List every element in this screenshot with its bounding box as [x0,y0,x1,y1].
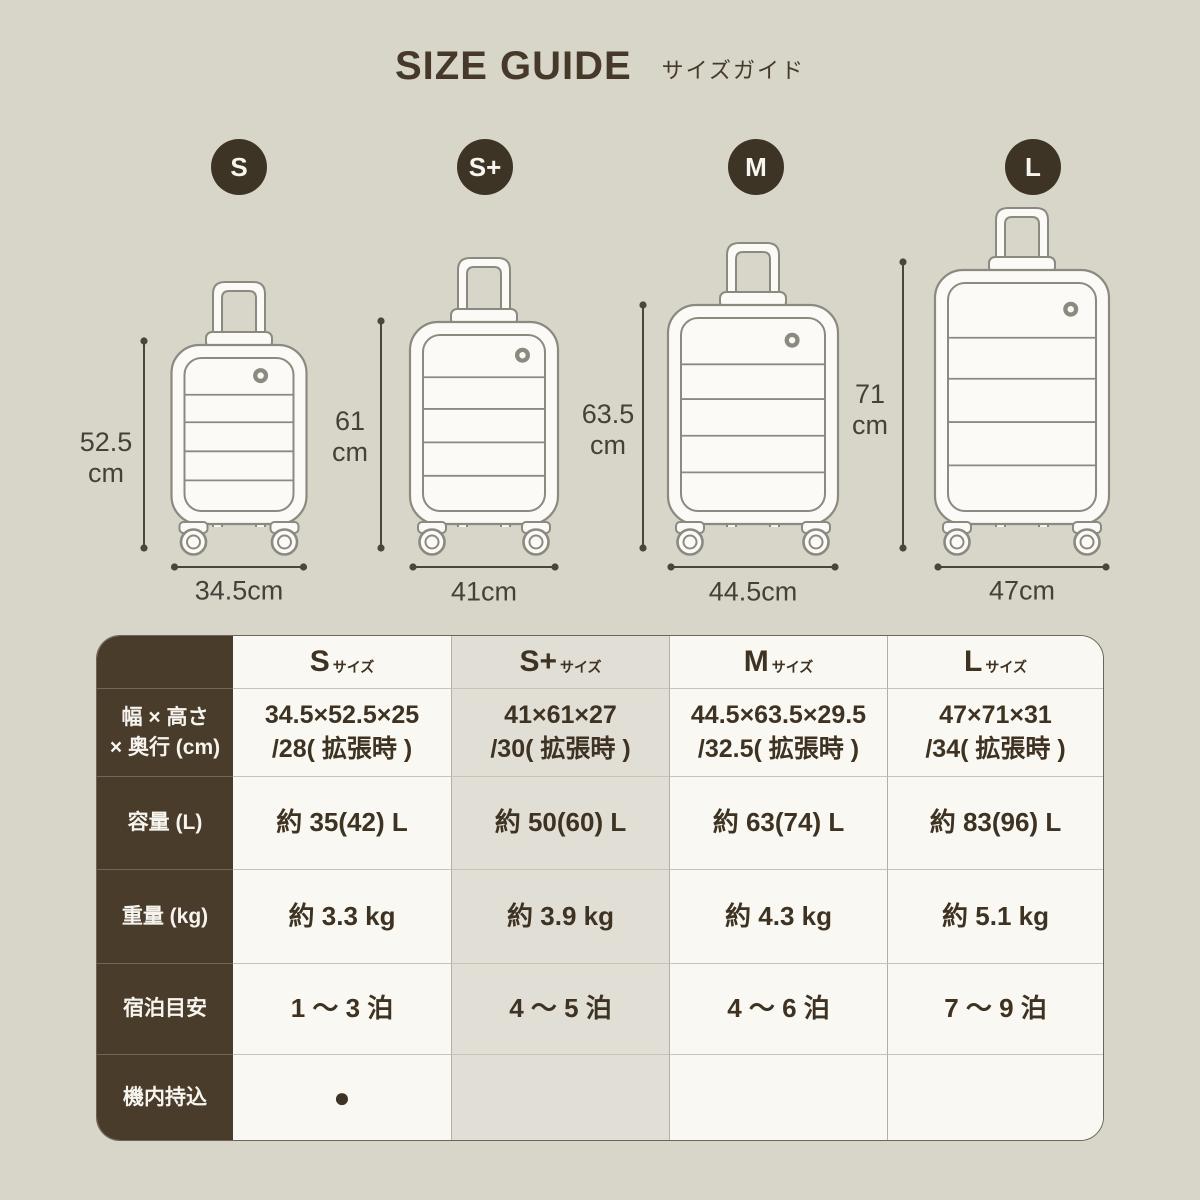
dimensions-s: 34.5×52.5×25 /28( 拡張時 ) [233,688,451,776]
weight-l: 約 5.1 kg [887,869,1103,963]
carryon-s-plus [451,1054,669,1140]
column-header-m: Mサイズ [669,636,887,688]
column-header-l: Lサイズ [887,636,1103,688]
column-letter: L [964,647,982,677]
title-japanese: サイズガイド [662,49,805,85]
column-suffix: サイズ [560,647,602,677]
column-header-s-plus: S+サイズ [451,636,669,688]
column-suffix: サイズ [985,647,1027,677]
dimensions-l: 47×71×31 /34( 拡張時 ) [887,688,1103,776]
size-badge-l: L [1005,139,1061,195]
carryon-l [887,1054,1103,1140]
size-badge-s: S [211,139,267,195]
height-label-m: 63.5 cm [582,399,635,461]
column-letter: M [744,647,769,677]
width-label-m: 44.5cm [709,577,798,608]
weight-s-plus: 約 3.9 kg [451,869,669,963]
size-spec-table: Sサイズ S+サイズ Mサイズ Lサイズ 幅 × 高さ × 奥行 (cm) 34… [96,635,1104,1141]
height-label-s: 52.5 cm [80,427,133,489]
column-letter: S+ [519,647,557,677]
dimensions-m: 44.5×63.5×29.5 /32.5( 拡張時 ) [669,688,887,776]
nights-l: 7 〜 9 泊 [887,963,1103,1054]
nights-s: 1 〜 3 泊 [233,963,451,1054]
nights-m: 4 〜 6 泊 [669,963,887,1054]
row-label-dimensions: 幅 × 高さ × 奥行 (cm) [97,688,233,776]
column-suffix: サイズ [772,647,814,677]
dimensions-s-plus: 41×61×27 /30( 拡張時 ) [451,688,669,776]
weight-m: 約 4.3 kg [669,869,887,963]
page-title: SIZE GUIDE サイズガイド [0,44,1200,89]
size-badge-m: M [728,139,784,195]
title-english: SIZE GUIDE [395,44,632,89]
height-label-s-plus: 61 cm [332,406,368,468]
carryon-s: ● [233,1054,451,1140]
row-label-weight: 重量 (kg) [97,869,233,963]
suitcase-illustrations [0,0,1200,620]
table-corner-cell [97,636,233,688]
weight-s: 約 3.3 kg [233,869,451,963]
column-header-s: Sサイズ [233,636,451,688]
capacity-m: 約 63(74) L [669,776,887,869]
column-letter: S [310,647,330,677]
row-label-carryon: 機内持込 [97,1054,233,1140]
size-badge-s-plus: S+ [457,139,513,195]
height-label-l: 71 cm [852,379,888,441]
size-guide-page: SIZE GUIDE サイズガイド S S+ M L 52.5 cm 61 cm… [0,0,1200,1200]
row-label-nights: 宿泊目安 [97,963,233,1054]
width-label-s: 34.5cm [195,576,284,607]
nights-s-plus: 4 〜 5 泊 [451,963,669,1054]
width-label-l: 47cm [989,576,1055,607]
row-label-capacity: 容量 (L) [97,776,233,869]
capacity-s-plus: 約 50(60) L [451,776,669,869]
width-label-s-plus: 41cm [451,577,517,608]
carryon-m [669,1054,887,1140]
capacity-l: 約 83(96) L [887,776,1103,869]
capacity-s: 約 35(42) L [233,776,451,869]
column-suffix: サイズ [333,647,375,677]
